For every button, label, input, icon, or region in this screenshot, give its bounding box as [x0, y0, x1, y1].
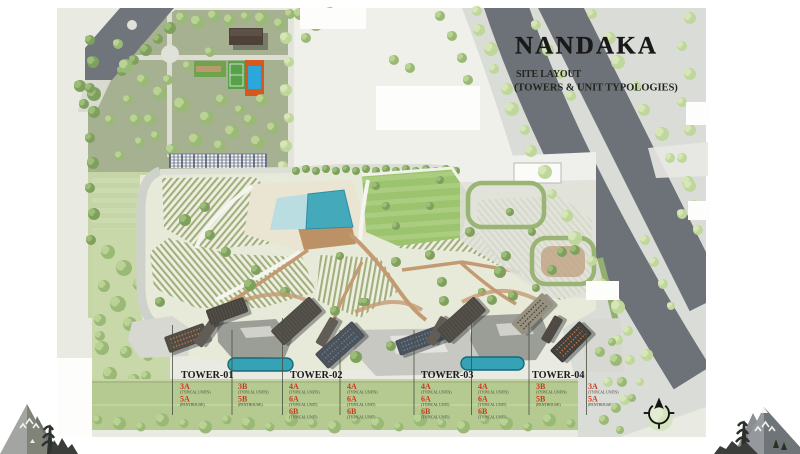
- svg-text:(PENTHOUSE): (PENTHOUSE): [238, 403, 263, 407]
- svg-text:(PENTHOUSE): (PENTHOUSE): [588, 403, 613, 407]
- svg-text:(TYPICAL UNIT): (TYPICAL UNIT): [421, 416, 450, 420]
- svg-text:SITE LAYOUT: SITE LAYOUT: [516, 69, 581, 80]
- svg-text:TOWER-02: TOWER-02: [290, 370, 342, 381]
- svg-text:TOWER-03: TOWER-03: [421, 370, 473, 381]
- svg-text:(TYPICAL UNIT): (TYPICAL UNIT): [478, 416, 507, 420]
- svg-text:NANDAKA: NANDAKA: [515, 33, 658, 60]
- svg-text:(TOWERS & UNIT TYPOLOGIES): (TOWERS & UNIT TYPOLOGIES): [514, 83, 678, 94]
- svg-text:(PENTHOUSE): (PENTHOUSE): [536, 403, 561, 407]
- svg-text:(PENTHOUSE): (PENTHOUSE): [180, 403, 205, 407]
- svg-text:(TYPICAL UNIT): (TYPICAL UNIT): [289, 416, 318, 420]
- svg-text:(TYPICAL UNIT): (TYPICAL UNIT): [347, 416, 376, 420]
- svg-text:TOWER-01: TOWER-01: [181, 370, 233, 381]
- svg-text:TOWER-04: TOWER-04: [532, 370, 584, 381]
